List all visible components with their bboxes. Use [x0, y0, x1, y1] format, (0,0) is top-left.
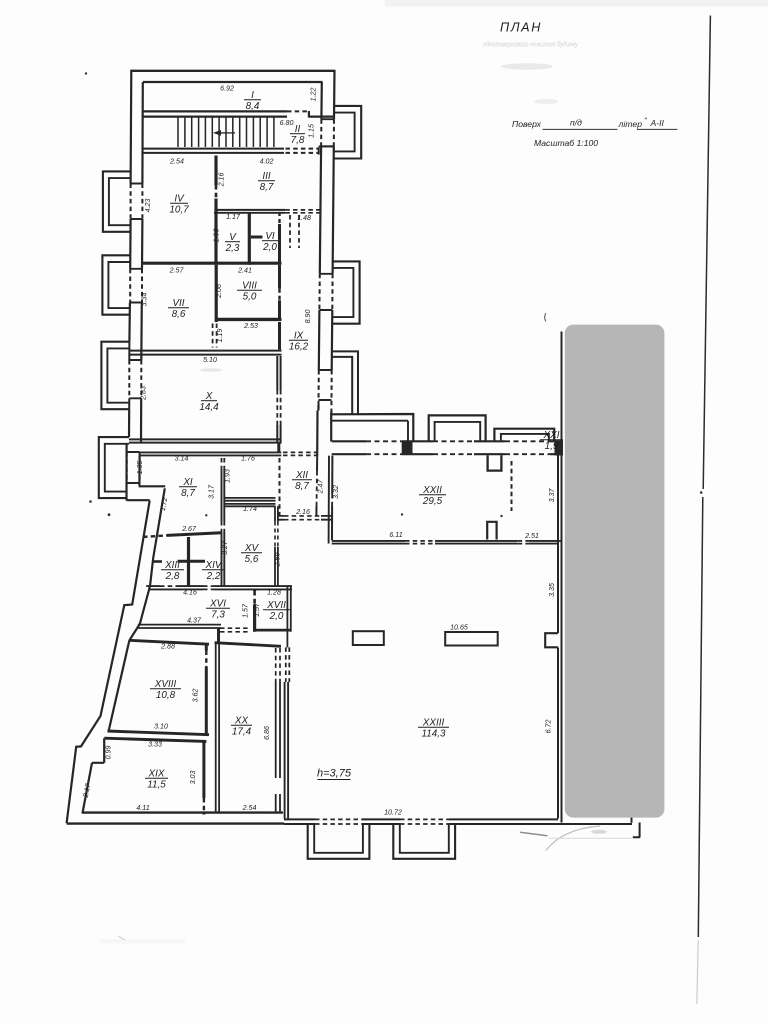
svg-text:14,4: 14,4	[199, 402, 219, 413]
svg-text:1.22: 1.22	[310, 88, 318, 102]
svg-text:114,3: 114,3	[422, 729, 446, 740]
svg-text:3.33: 3.33	[148, 741, 162, 749]
svg-text:А-ІІ: А-ІІ	[650, 118, 665, 128]
svg-text:4.02: 4.02	[260, 158, 274, 166]
svg-text:4.11: 4.11	[136, 804, 149, 812]
svg-text:п/д: п/д	[570, 118, 582, 128]
svg-text:3.35: 3.35	[548, 583, 556, 597]
svg-text:1.93: 1.93	[213, 229, 221, 243]
svg-text:2.54: 2.54	[242, 804, 257, 812]
svg-text:1.15: 1.15	[308, 124, 316, 138]
svg-text:5.10: 5.10	[203, 356, 217, 364]
svg-text:Поверх: Поверх	[512, 119, 542, 129]
svg-text:4.23: 4.23	[144, 199, 152, 213]
svg-text:11,5: 11,5	[147, 780, 166, 791]
svg-text:6.86: 6.86	[263, 726, 271, 740]
svg-text:1.57: 1.57	[242, 603, 250, 618]
svg-text:2.53: 2.53	[243, 322, 258, 330]
svg-text:2.41: 2.41	[237, 267, 252, 275]
svg-text:2,2: 2,2	[206, 571, 221, 582]
svg-text:1.93: 1.93	[224, 469, 232, 483]
svg-text:3.27: 3.27	[221, 540, 229, 555]
svg-text:2.51: 2.51	[524, 532, 539, 540]
svg-text:6.72: 6.72	[545, 720, 553, 734]
svg-text:17,4: 17,4	[232, 727, 252, 738]
svg-text:1.57: 1.57	[253, 602, 261, 617]
svg-text:10,7: 10,7	[169, 205, 189, 216]
svg-text:5,0: 5,0	[243, 292, 257, 303]
svg-text:2,8: 2,8	[165, 571, 180, 582]
svg-text:2.16: 2.16	[295, 508, 310, 516]
svg-text:h=3,75: h=3,75	[317, 768, 352, 780]
svg-text:10.65: 10.65	[450, 624, 468, 632]
svg-text:3.32: 3.32	[332, 485, 340, 499]
svg-text:2.88: 2.88	[160, 643, 175, 651]
svg-text:2,0: 2,0	[269, 611, 284, 622]
svg-text:2.06: 2.06	[215, 284, 223, 299]
svg-text:8.90: 8.90	[304, 310, 312, 324]
svg-text:2,3: 2,3	[225, 243, 240, 254]
svg-text:8,4: 8,4	[246, 101, 260, 112]
svg-text:2.54: 2.54	[169, 158, 184, 166]
svg-text:2.59: 2.59	[274, 553, 282, 568]
svg-text:8,7: 8,7	[181, 488, 195, 499]
svg-text:7,3: 7,3	[211, 610, 225, 621]
svg-text:2,0: 2,0	[262, 242, 277, 253]
svg-text:1.28: 1.28	[267, 588, 281, 596]
svg-text:Масштаб 1:100: Масштаб 1:100	[534, 138, 598, 148]
svg-text:2.67: 2.67	[181, 525, 197, 533]
svg-text:8,7: 8,7	[260, 182, 274, 193]
svg-text:10.72: 10.72	[384, 808, 402, 816]
svg-text:0.99: 0.99	[105, 746, 113, 760]
svg-text:2.83: 2.83	[140, 386, 148, 401]
svg-text:6.92: 6.92	[220, 85, 234, 93]
svg-text:8,7: 8,7	[295, 481, 309, 492]
svg-text:1.74: 1.74	[243, 505, 257, 513]
svg-text:3.37: 3.37	[548, 488, 556, 503]
svg-text:1.17: 1.17	[226, 213, 241, 221]
svg-text:3.62: 3.62	[192, 689, 200, 703]
svg-text:10,8: 10,8	[156, 690, 176, 701]
svg-text:1.76: 1.76	[241, 455, 255, 463]
svg-text:6.80: 6.80	[280, 119, 294, 127]
svg-text:8,6: 8,6	[172, 309, 186, 320]
svg-text:ПЛАН: ПЛАН	[500, 21, 542, 35]
svg-text:3.34: 3.34	[141, 293, 149, 307]
svg-text:3.14: 3.14	[175, 455, 189, 463]
svg-text:3.17: 3.17	[208, 484, 216, 499]
svg-text:2.16: 2.16	[218, 173, 226, 188]
svg-text:4.37: 4.37	[187, 617, 202, 625]
svg-text:16,2: 16,2	[289, 342, 309, 353]
svg-text:2.47: 2.47	[317, 479, 325, 495]
svg-text:5,6: 5,6	[245, 554, 259, 565]
svg-text:2.57: 2.57	[169, 267, 185, 275]
svg-text:3.03: 3.03	[189, 771, 197, 785]
svg-text:29,5: 29,5	[422, 496, 443, 507]
svg-text:1.19: 1.19	[216, 329, 224, 343]
svg-text:3.10: 3.10	[154, 723, 168, 731]
svg-text:6.11: 6.11	[389, 531, 402, 539]
svg-text:1,9: 1,9	[545, 441, 559, 452]
svg-text:4.16: 4.16	[183, 588, 197, 596]
svg-text:1.35: 1.35	[136, 461, 144, 475]
svg-text:літер: літер	[618, 119, 643, 129]
svg-text:7,8: 7,8	[291, 135, 305, 146]
svg-text:1.48: 1.48	[297, 214, 311, 222]
svg-text:одноповерхового нежилого будин: одноповерхового нежилого будинку	[483, 41, 578, 49]
